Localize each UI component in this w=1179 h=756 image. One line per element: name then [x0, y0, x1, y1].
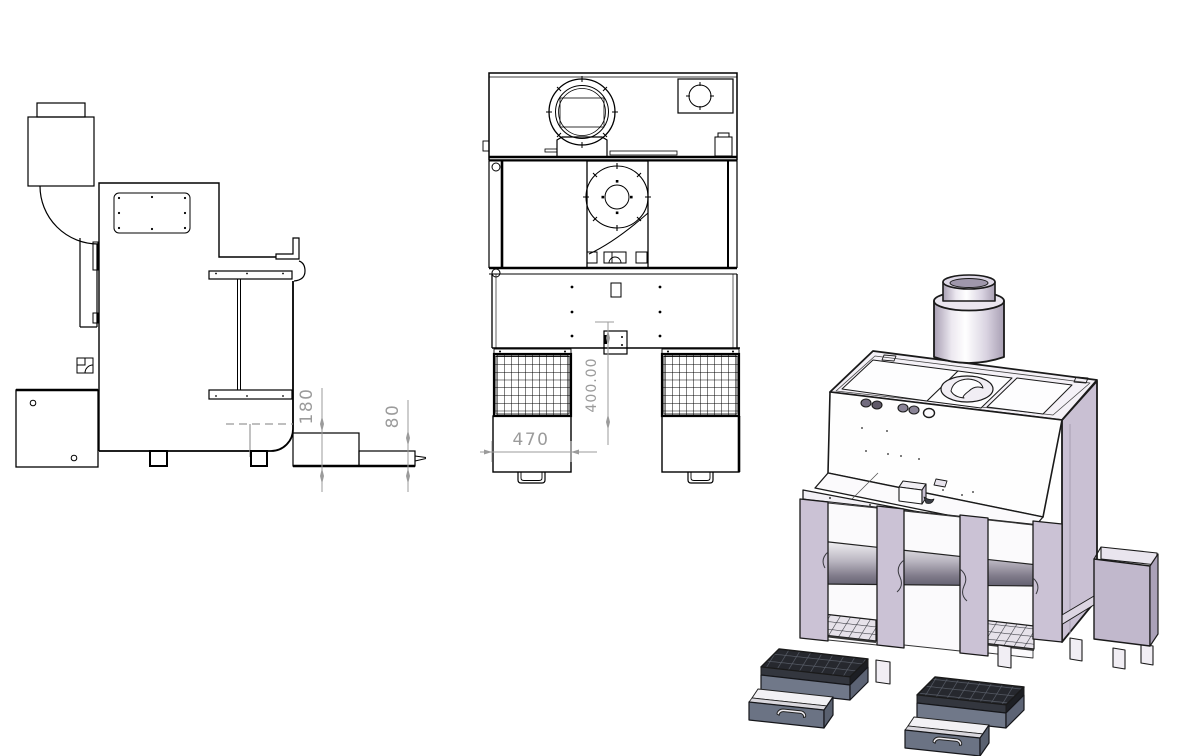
front-dimension-400: 400.00	[584, 322, 614, 445]
front-mid-band	[489, 157, 737, 277]
iso-right-drawer	[905, 677, 1024, 756]
side-clamp-bracket	[77, 358, 93, 373]
dim-label-470: 470	[513, 430, 550, 450]
iso-chimney	[934, 275, 1004, 363]
dim-label-80: 80	[383, 404, 403, 429]
front-view: 400.00 470	[480, 73, 740, 483]
dim-label-400: 400.00	[584, 358, 600, 413]
side-view: 180 80	[16, 103, 426, 492]
front-right-mesh	[662, 349, 739, 416]
side-dimension-80: 80	[383, 400, 410, 492]
side-access-panel	[114, 193, 190, 233]
front-feet	[518, 472, 713, 483]
side-body-outline	[99, 183, 305, 451]
front-firebox-band	[492, 274, 740, 354]
cad-drawing-page: 180 80	[0, 0, 1179, 756]
side-elbow-duct	[40, 186, 98, 327]
front-top-band	[483, 73, 737, 160]
isometric-view	[749, 275, 1158, 756]
front-dimension-470: 470	[480, 430, 597, 462]
side-base-box	[16, 390, 98, 467]
dim-label-180: 180	[297, 388, 317, 425]
front-left-mesh	[494, 349, 571, 416]
side-dimension-180: 180	[297, 388, 324, 492]
side-fan-motor	[28, 103, 94, 186]
cad-drawing-canvas: 180 80	[0, 0, 1179, 756]
iso-left-drawer	[749, 649, 868, 728]
side-shelf-table	[209, 271, 292, 399]
iso-side-hopper	[1094, 547, 1158, 646]
